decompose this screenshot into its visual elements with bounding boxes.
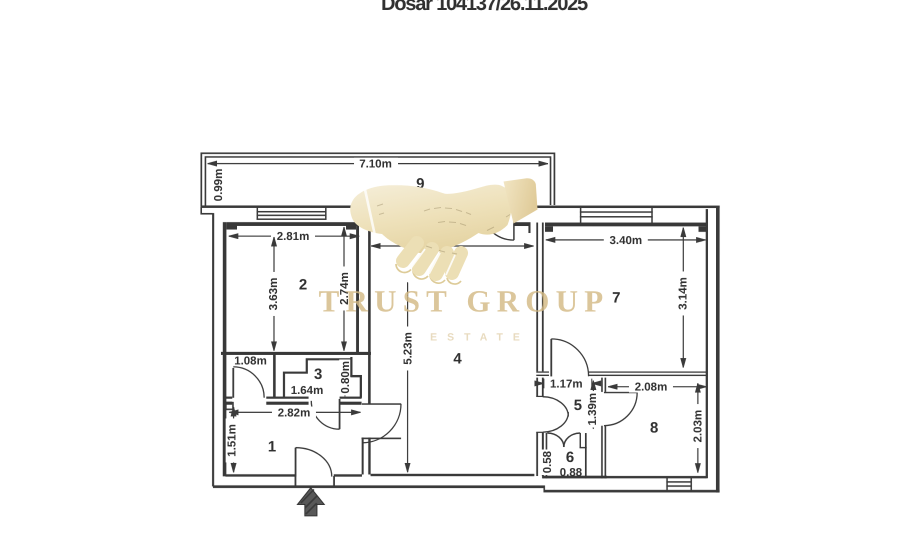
svg-text:3: 3: [314, 366, 322, 383]
svg-text:0.80m: 0.80m: [340, 361, 352, 394]
svg-text:5: 5: [574, 397, 582, 414]
svg-text:2.08m: 2.08m: [635, 382, 668, 394]
svg-text:0.58: 0.58: [542, 450, 554, 473]
svg-text:0.88: 0.88: [560, 467, 583, 479]
svg-text:1.64m: 1.64m: [291, 385, 324, 397]
svg-text:2.03m: 2.03m: [692, 410, 704, 443]
svg-text:3.14m: 3.14m: [677, 277, 689, 310]
svg-text:7: 7: [612, 290, 620, 307]
svg-text:TRUST GROUP: TRUST GROUP: [319, 283, 610, 318]
svg-text:0.99m: 0.99m: [213, 169, 225, 202]
svg-text:1.39m: 1.39m: [587, 393, 599, 426]
svg-text:Dosar 104137/26.11.2025: Dosar 104137/26.11.2025: [381, 0, 588, 15]
svg-text:1: 1: [268, 438, 276, 455]
svg-text:2.82m: 2.82m: [278, 407, 311, 419]
svg-text:3.40m: 3.40m: [610, 235, 643, 247]
svg-text:2.81m: 2.81m: [277, 231, 310, 243]
svg-text:4: 4: [453, 350, 462, 367]
svg-text:2: 2: [299, 277, 307, 294]
svg-text:6: 6: [566, 449, 574, 466]
svg-text:ESTATE: ESTATE: [430, 331, 530, 343]
svg-text:1.08m: 1.08m: [234, 355, 267, 367]
svg-text:3.63m: 3.63m: [268, 278, 280, 311]
svg-text:7.10m: 7.10m: [359, 159, 392, 171]
svg-text:8: 8: [650, 419, 658, 436]
svg-text:1.17m: 1.17m: [550, 378, 583, 390]
svg-text:1.51m: 1.51m: [226, 424, 238, 457]
svg-text:5.23m: 5.23m: [402, 332, 414, 365]
